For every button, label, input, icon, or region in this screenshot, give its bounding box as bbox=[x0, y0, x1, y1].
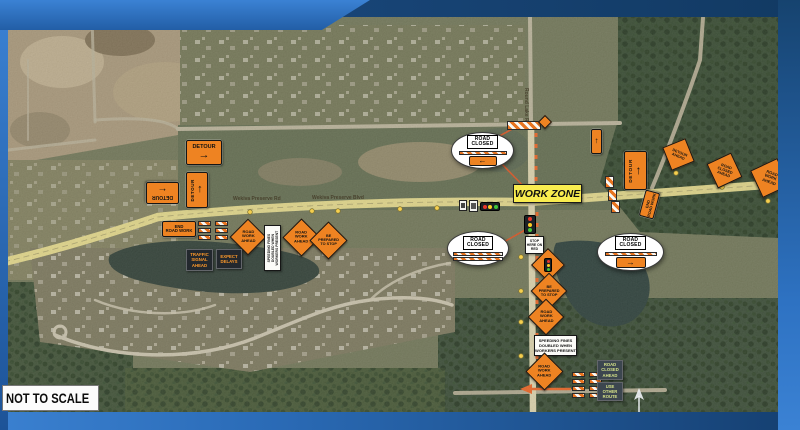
road-label-main-east: Wekiva Preserve Blvd bbox=[312, 195, 364, 201]
message-board-expect-delays: EXPECT DELAYS bbox=[216, 249, 242, 269]
detour-sign-north-arrow-east: DETOUR ↑ bbox=[624, 151, 647, 190]
detour-arrow-sign: → bbox=[616, 257, 646, 268]
barricade-stripe bbox=[605, 252, 657, 256]
road-label-vertical: Round Lake Rd bbox=[523, 88, 529, 125]
frame-top-left-accent bbox=[0, 0, 370, 30]
right-arrow-icon: → bbox=[199, 151, 210, 159]
left-arrow-icon: ← bbox=[158, 187, 168, 195]
detour-sign-east-arrow: DETOUR → bbox=[186, 140, 222, 165]
detour-label: DETOUR bbox=[191, 179, 196, 202]
message-board-use-route: USE OTHER ROUTE bbox=[597, 382, 623, 401]
barricade-stripe bbox=[459, 151, 507, 155]
detour-sign-westbound-flipped: DETOUR ← bbox=[146, 182, 179, 204]
road-closed-sign: ROAD CLOSED bbox=[615, 236, 645, 251]
temporary-signal-icon-horizontal bbox=[480, 202, 500, 211]
road-closure-barricade-icon bbox=[507, 121, 541, 130]
up-arrow-icon: ↑ bbox=[595, 137, 599, 145]
barricade-stripe bbox=[453, 257, 503, 261]
traffic-signal-icon-vertical bbox=[524, 215, 536, 234]
road-closed-sign: ROAD CLOSED bbox=[463, 236, 493, 251]
speeding-fines-sign-vertical: SPEEDING FINES DOUBLED WHEN WORKERS PRES… bbox=[264, 225, 281, 271]
road-closed-callout-north: ROAD CLOSED ← bbox=[451, 132, 514, 169]
message-board-traffic-signal: TRAFFIC SIGNAL AHEAD bbox=[186, 249, 213, 271]
channelizer-icon bbox=[605, 176, 614, 188]
small-regulatory-signs bbox=[459, 200, 478, 212]
road-label-main-west: Wekiva Preserve Rd bbox=[233, 196, 281, 202]
frame-bottom-bar bbox=[0, 412, 800, 430]
stop-here-on-red-sign: STOP HERE ON RED bbox=[525, 236, 544, 254]
work-zone-map: Wekiva Preserve Rd Wekiva Preserve Blvd … bbox=[0, 0, 800, 430]
type3-barricade-icon bbox=[198, 221, 228, 240]
not-to-scale-label: NOT TO SCALE bbox=[2, 385, 99, 411]
barricade-stripe bbox=[453, 252, 503, 256]
frame-left-bar bbox=[0, 0, 8, 430]
detour-arrow-sign: ← bbox=[469, 156, 497, 166]
left-arrow-icon: ← bbox=[479, 158, 487, 164]
signal-symbol-icon bbox=[544, 258, 552, 272]
end-road-work-sign: END ROAD WORK bbox=[162, 221, 196, 237]
detour-label: DETOUR bbox=[629, 159, 634, 183]
frame-right-bar bbox=[778, 0, 800, 430]
road-closed-callout-east: ROAD CLOSED → bbox=[597, 233, 664, 271]
right-arrow-icon: → bbox=[626, 259, 635, 266]
detour-sign-north-arrow: DETOUR ↑ bbox=[186, 172, 208, 208]
message-board-road-closed: ROAD CLOSED AHEAD bbox=[597, 360, 623, 380]
road-closed-sign: ROAD CLOSED bbox=[467, 135, 497, 150]
channelizer-icon bbox=[611, 201, 620, 213]
detour-marker-icon: ↑ bbox=[591, 129, 602, 154]
work-zone-label: WORK ZONE bbox=[513, 184, 582, 203]
north-arrow-icon bbox=[631, 388, 647, 414]
up-arrow-icon: ↑ bbox=[197, 184, 203, 196]
speeding-fines-text: SPEEDING FINES DOUBLED WHEN WORKERS PRES… bbox=[267, 226, 279, 270]
road-closed-callout-center: ROAD CLOSED bbox=[447, 231, 509, 266]
aerial-map-background bbox=[0, 0, 800, 430]
channelizer-icon bbox=[608, 189, 617, 201]
up-arrow-icon: ↑ bbox=[636, 164, 642, 177]
speeding-fines-sign: SPEEDING FINES DOUBLED WHEN WORKERS PRES… bbox=[534, 335, 577, 356]
